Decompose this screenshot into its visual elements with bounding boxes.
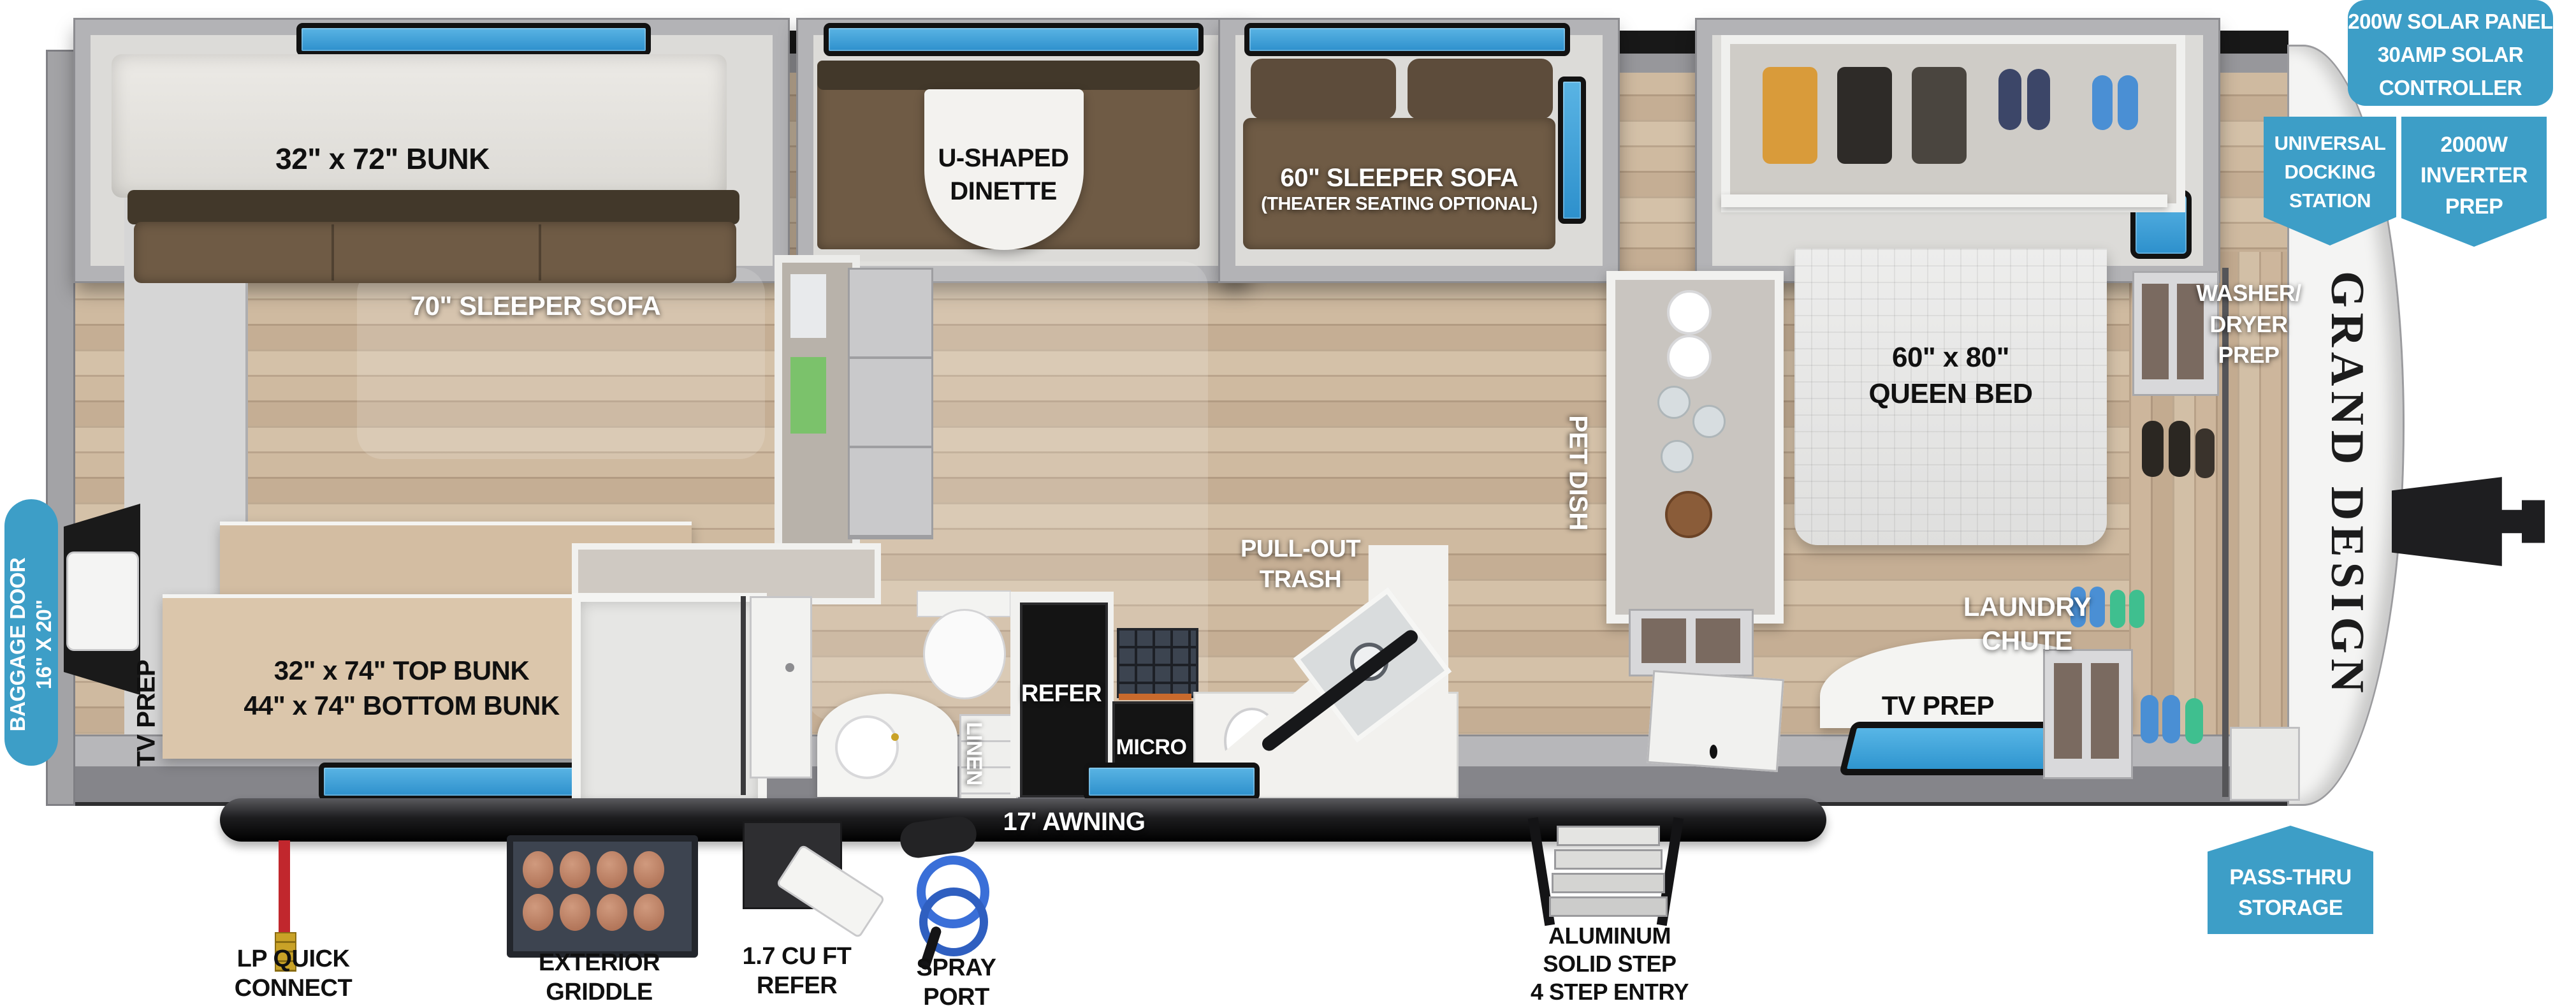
label-u-shaped-dinette: U-SHAPED DINETTE: [914, 142, 1093, 208]
hutch-glass: [1692, 405, 1726, 438]
step-tread: [1557, 826, 1660, 846]
pantry-item-white: [790, 274, 826, 338]
shower-door-track: [741, 596, 746, 795]
stove-handle: [1119, 694, 1191, 700]
griddle-patty: [634, 894, 664, 931]
step-tread: [1549, 896, 1668, 917]
label-washer-dryer: WASHER/ DRYER PREP: [2190, 278, 2308, 371]
closet-shoe: [2185, 698, 2203, 744]
lp-pipe: [279, 840, 290, 933]
sleeper-sofa60-cushion: [1408, 59, 1553, 119]
hutch-bowl-brown: [1665, 491, 1712, 538]
bath-door-knob: [785, 663, 794, 672]
sofa-window: [1244, 23, 1570, 56]
griddle-patty: [523, 894, 553, 931]
label-awning: 17' AWNING: [991, 807, 1157, 837]
step-tread: [1554, 849, 1663, 870]
label-mini-refer: 1.7 CU FT REFER: [704, 942, 889, 1000]
hitch-tongue: [2392, 473, 2545, 570]
sleeper-sofa70-back: [127, 190, 739, 224]
entry-door-knob: [1710, 745, 1717, 759]
callout-baggage-door: BAGGAGE DOOR 16" X 20": [4, 499, 58, 766]
sleeper-sofa60-cushion: [1251, 59, 1396, 119]
sofa70-cushion-seam: [539, 224, 541, 281]
hutch-glass: [1657, 386, 1691, 419]
griddle-patty: [597, 894, 627, 931]
hutch-glass: [1661, 440, 1694, 473]
hutch-plate: [1667, 335, 1712, 379]
callout-inverter-prep: 2000W INVERTER PREP: [2401, 117, 2547, 247]
wardrobe-towel-gray: [1912, 67, 1967, 164]
sofa-side-window: [1558, 77, 1586, 224]
entry-cabinet-panel: [1641, 618, 1686, 663]
label-tv-prep-left: TV PREP: [131, 650, 161, 777]
grand-design-logo: GRAND DESIGN: [2303, 230, 2392, 740]
wardrobe-towel-orange: [1763, 67, 1817, 164]
rv-floorplan: GRAND DESIGN: [0, 0, 2576, 1008]
griddle-patty: [523, 851, 553, 888]
closet-shoe: [2141, 695, 2158, 743]
label-micro: MICRO: [1100, 734, 1202, 760]
griddle-patty: [560, 894, 590, 931]
label-double-bunk: 32" x 74" TOP BUNK 44" x 74" BOTTOM BUNK: [210, 653, 593, 724]
label-linen: LINEN: [961, 703, 987, 805]
label-pet-dish: PET DISH: [1562, 400, 1592, 546]
callout-pass-thru-storage: PASS-THRU STORAGE: [2208, 826, 2373, 934]
hung-shoe: [2110, 590, 2125, 628]
wardrobe-towel-black: [1837, 67, 1892, 164]
pantry-doors: [848, 268, 933, 539]
closet-shoe: [2162, 695, 2180, 743]
label-exterior-griddle: EXTERIOR GRIDDLE: [504, 949, 695, 1007]
griddle-patty: [634, 851, 664, 888]
closet-hamper: [2230, 727, 2300, 801]
wardrobe-shoe: [2118, 75, 2138, 130]
label-spray-port: SPRAY PORT: [886, 954, 1026, 1008]
wardrobe-shoe: [1998, 69, 2021, 130]
closet-cabinet-panel: [2142, 284, 2169, 379]
sofa70-cushion-seam: [331, 224, 334, 281]
vanity-sink: [835, 715, 899, 779]
stove-cooktop: [1117, 628, 1198, 698]
dinette-bench-back: [817, 61, 1200, 90]
sleeper-sofa70-seat: [134, 222, 736, 283]
label-pull-out-trash: PULL-OUT TRASH: [1218, 534, 1383, 595]
wardrobe-ledge: [1721, 194, 2167, 207]
pantry-item-green: [790, 357, 826, 434]
wardrobe-shoe: [2092, 75, 2113, 130]
closet-boot: [2195, 428, 2215, 478]
entry-cabinet-panel: [1696, 618, 1740, 663]
vanity-faucet: [891, 733, 899, 741]
dinette-window: [824, 23, 1204, 56]
baggage-door-panel: [66, 551, 139, 651]
label-refer: REFER: [1010, 680, 1112, 708]
step-tread: [1552, 873, 1665, 893]
griddle-patty: [560, 851, 590, 888]
bath-door: [750, 596, 812, 778]
bedroom-door-panel: [2054, 663, 2082, 759]
callout-solar: 200W SOLAR PANEL 30AMP SOLAR CONTROLLER: [2348, 0, 2553, 106]
griddle-patty: [597, 851, 627, 888]
hutch-plate: [1667, 290, 1712, 335]
closet-boot: [2142, 421, 2164, 477]
bedroom-door-panel: [2091, 663, 2119, 759]
kitchen-lower-window: [1084, 763, 1260, 801]
shower-stall: [572, 593, 767, 815]
hung-shoe: [2129, 590, 2144, 628]
bunk-window: [296, 23, 651, 56]
wardrobe-shoe: [2027, 69, 2050, 130]
label-queen-bed: 60" x 80" QUEEN BED: [1823, 339, 2078, 412]
label-sleeper-sofa-60: 60" SLEEPER SOFA (THEATER SEATING OPTION…: [1243, 163, 1555, 215]
label-tv-prep-bedroom: TV PREP: [1842, 690, 2034, 722]
label-lp-quick-connect: LP QUICK CONNECT: [198, 945, 389, 1003]
label-entry-steps: ALUMINUM SOLID STEP 4 STEP ENTRY: [1511, 922, 1708, 1006]
closet-boot: [2169, 421, 2190, 477]
label-sleeper-sofa-70: 70" SLEEPER SOFA: [376, 290, 695, 322]
label-laundry-chute: LAUNDRY CHUTE: [1944, 590, 2110, 657]
toilet-bowl: [923, 609, 1006, 699]
label-bunk-32x72: 32" x 72" BUNK: [233, 142, 532, 176]
